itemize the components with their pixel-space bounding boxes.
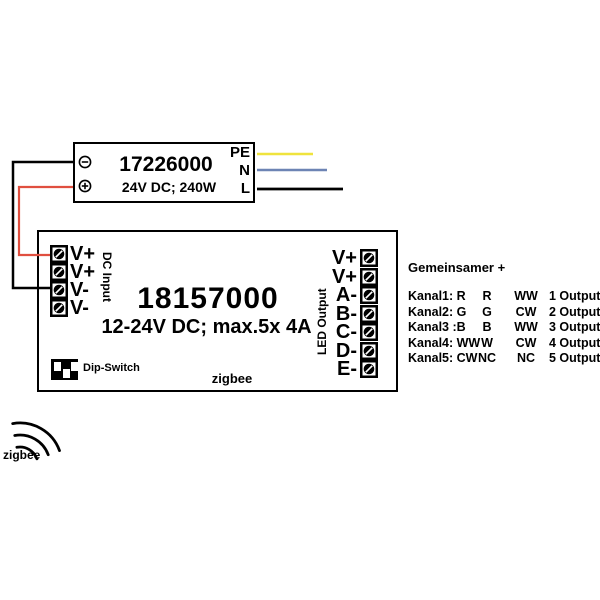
output-screw-terminal-6 xyxy=(360,342,378,360)
legend-col3: WW xyxy=(509,320,543,334)
input-screw-terminal-1 xyxy=(50,245,68,263)
zigbee-antenna-label: zigbee xyxy=(3,449,40,462)
legend-output: 3 Output xyxy=(549,320,599,334)
minus-terminal-icon xyxy=(78,155,92,169)
legend-col2: W xyxy=(470,336,504,350)
legend-col2: NC xyxy=(470,351,504,365)
legend-col3: CW xyxy=(509,305,543,319)
controller-spec: 12-24V DC; max.5x 4A xyxy=(80,316,333,338)
zigbee-arc-outer xyxy=(13,423,60,451)
legend-col3: WW xyxy=(509,289,543,303)
legend-col3: NC xyxy=(509,351,543,365)
output-screw-terminal-3 xyxy=(360,286,378,304)
output-terminal-label-7: E- xyxy=(300,358,357,380)
dip-switch-label: Dip-Switch xyxy=(83,362,140,375)
pe-label: PE xyxy=(222,145,250,160)
legend-kanal: Kanal5: CW xyxy=(408,351,478,365)
legend-output: 2 Output xyxy=(549,305,599,319)
wiring-diagram: 17226000 24V DC; 240W PE N L V+ V+ V- V-… xyxy=(0,0,600,600)
legend-header: Gemeinsamer + xyxy=(408,261,505,275)
output-screw-terminal-7 xyxy=(360,360,378,378)
legend-output: 5 Output xyxy=(549,351,599,365)
legend-col3: CW xyxy=(509,336,543,350)
legend-kanal: Kanal3 :B xyxy=(408,320,478,334)
output-screw-terminal-2 xyxy=(360,268,378,286)
legend-col2: G xyxy=(470,305,504,319)
dip-switch-lever-2 xyxy=(63,369,70,378)
input-screw-terminal-4 xyxy=(50,299,68,317)
psu-model-number: 17226000 xyxy=(103,154,229,175)
dip-switch-lever-3 xyxy=(71,362,78,371)
controller-model-number: 18157000 xyxy=(100,283,316,315)
legend-output: 1 Output xyxy=(549,289,599,303)
plus-terminal-icon xyxy=(78,179,92,193)
legend-kanal: Kanal4: WW xyxy=(408,336,478,350)
output-screw-terminal-4 xyxy=(360,305,378,323)
controller-zigbee-label: zigbee xyxy=(192,371,272,386)
l-label: L xyxy=(222,181,250,196)
n-label: N xyxy=(222,163,250,178)
dip-switch-lever-1 xyxy=(54,362,61,371)
input-screw-terminal-3 xyxy=(50,281,68,299)
legend-kanal: Kanal1: R xyxy=(408,289,478,303)
legend-output: 4 Output xyxy=(549,336,599,350)
legend-col2: R xyxy=(470,289,504,303)
output-screw-terminal-1 xyxy=(360,249,378,267)
psu-spec: 24V DC; 240W xyxy=(103,180,235,195)
legend-col2: B xyxy=(470,320,504,334)
legend-kanal: Kanal2: G xyxy=(408,305,478,319)
input-screw-terminal-2 xyxy=(50,263,68,281)
dip-switch-icon xyxy=(51,359,78,380)
output-screw-terminal-5 xyxy=(360,323,378,341)
